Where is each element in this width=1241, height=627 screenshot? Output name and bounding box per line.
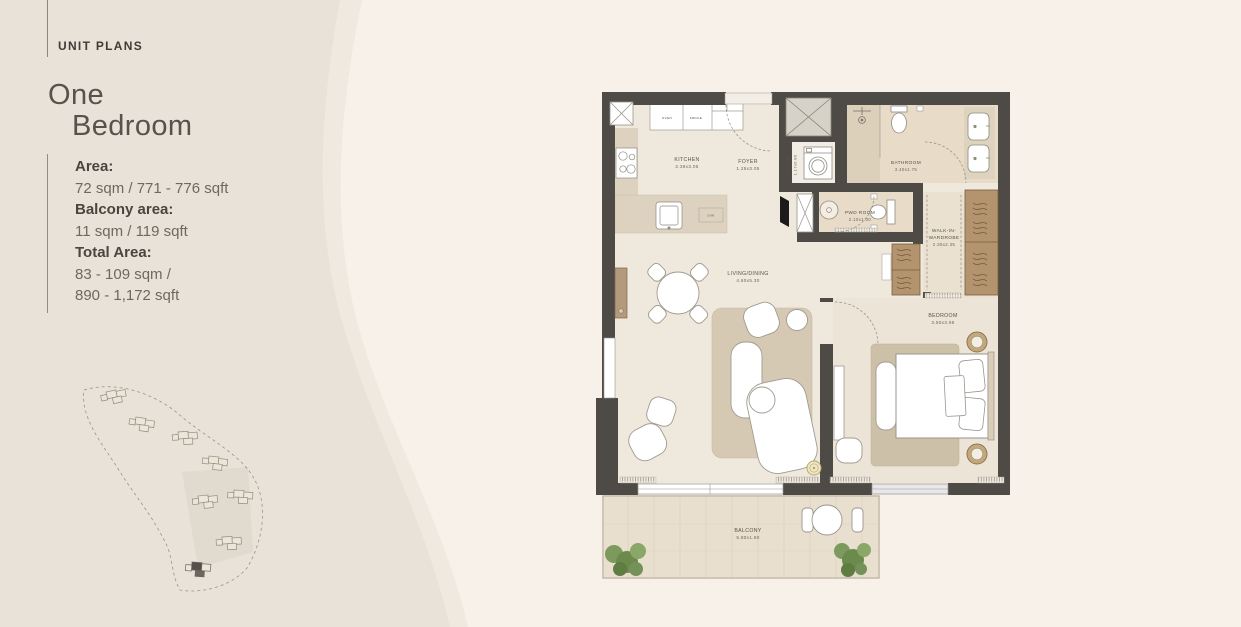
- dishwasher-label: D/W: [708, 214, 715, 218]
- balcony-area-label: Balcony area:: [75, 199, 305, 221]
- wardrobe-label-1: WALK-IN-: [932, 228, 956, 234]
- laundry-dims: 1.17x0.80: [793, 154, 798, 175]
- bathroom-dims: 3.40x1.75: [895, 167, 918, 172]
- living-sliding-door: [638, 484, 783, 494]
- stove-icon: [616, 148, 637, 178]
- total-area-label: Total Area:: [75, 242, 305, 264]
- area-stats: Area: 72 sqm / 771 - 776 sqft Balcony ar…: [47, 154, 305, 313]
- bed: [876, 352, 994, 440]
- total-area-value-1: 83 - 109 sqm /: [75, 264, 305, 286]
- site-plan-minimap: [62, 372, 295, 594]
- side-table-icon: [807, 461, 821, 475]
- eyebrow-rule: [47, 0, 48, 57]
- section-eyebrow: UNIT PLANS: [58, 39, 143, 53]
- fridge-label: FRDGE: [690, 116, 703, 120]
- living-label: LIVING/DINING: [727, 271, 768, 277]
- pwd-dims: 2.10x1.00: [849, 217, 872, 222]
- foyer-dims: 1.25x3.05: [736, 166, 759, 171]
- title-line-1: One: [48, 79, 104, 111]
- page-title: One Bedroom: [48, 80, 192, 142]
- kitchen-dims: 2.39x3.05: [675, 164, 698, 169]
- washing-machine-icon: [804, 147, 832, 179]
- laundry-label: LAUNDRY: [786, 154, 791, 176]
- foyer-label: FOYER: [738, 159, 758, 165]
- bedroom-dims: 3.50x3.95: [931, 320, 954, 325]
- wardrobe-dims: 2.30x2.35: [933, 242, 956, 247]
- bedroom-label: BEDROOM: [928, 313, 957, 319]
- entrance-door: [725, 93, 772, 104]
- oven-label: OVEN: [662, 116, 672, 120]
- balcony-area-value: 11 sqm / 119 sqft: [75, 221, 305, 243]
- pwd-basin-icon: [820, 201, 838, 219]
- title-line-2: Bedroom: [72, 111, 192, 142]
- area-label: Area:: [75, 156, 305, 178]
- wardrobe-label-2: WARDROBE: [929, 235, 960, 241]
- highlighted-building: [185, 562, 211, 578]
- toilet-icon: [891, 106, 907, 133]
- duct-label-strip: [882, 254, 891, 280]
- pwd-label: PWD ROOM: [845, 210, 875, 216]
- living-window: [604, 338, 615, 398]
- balcony-table-set: [802, 505, 863, 535]
- bathroom-label: BATHROOM: [891, 160, 921, 166]
- bedroom-window: [872, 484, 948, 494]
- kitchen-label: KITCHEN: [674, 157, 699, 163]
- balcony-dims: 5.80x1.80: [736, 535, 759, 540]
- kitchen-sink-icon: [656, 202, 682, 229]
- balcony-label: BALCONY: [734, 528, 761, 534]
- sideboard: [615, 268, 627, 318]
- total-area-value-2: 890 - 1,172 sqft: [75, 285, 305, 307]
- floor-plan: OVEN FRDGE D/W: [590, 80, 1020, 590]
- living-dims: 4.60x5.30: [736, 278, 759, 283]
- area-value: 72 sqm / 771 - 776 sqft: [75, 178, 305, 200]
- unit-info-panel: UNIT PLANS One Bedroom Area: 72 sqm / 77…: [0, 0, 330, 627]
